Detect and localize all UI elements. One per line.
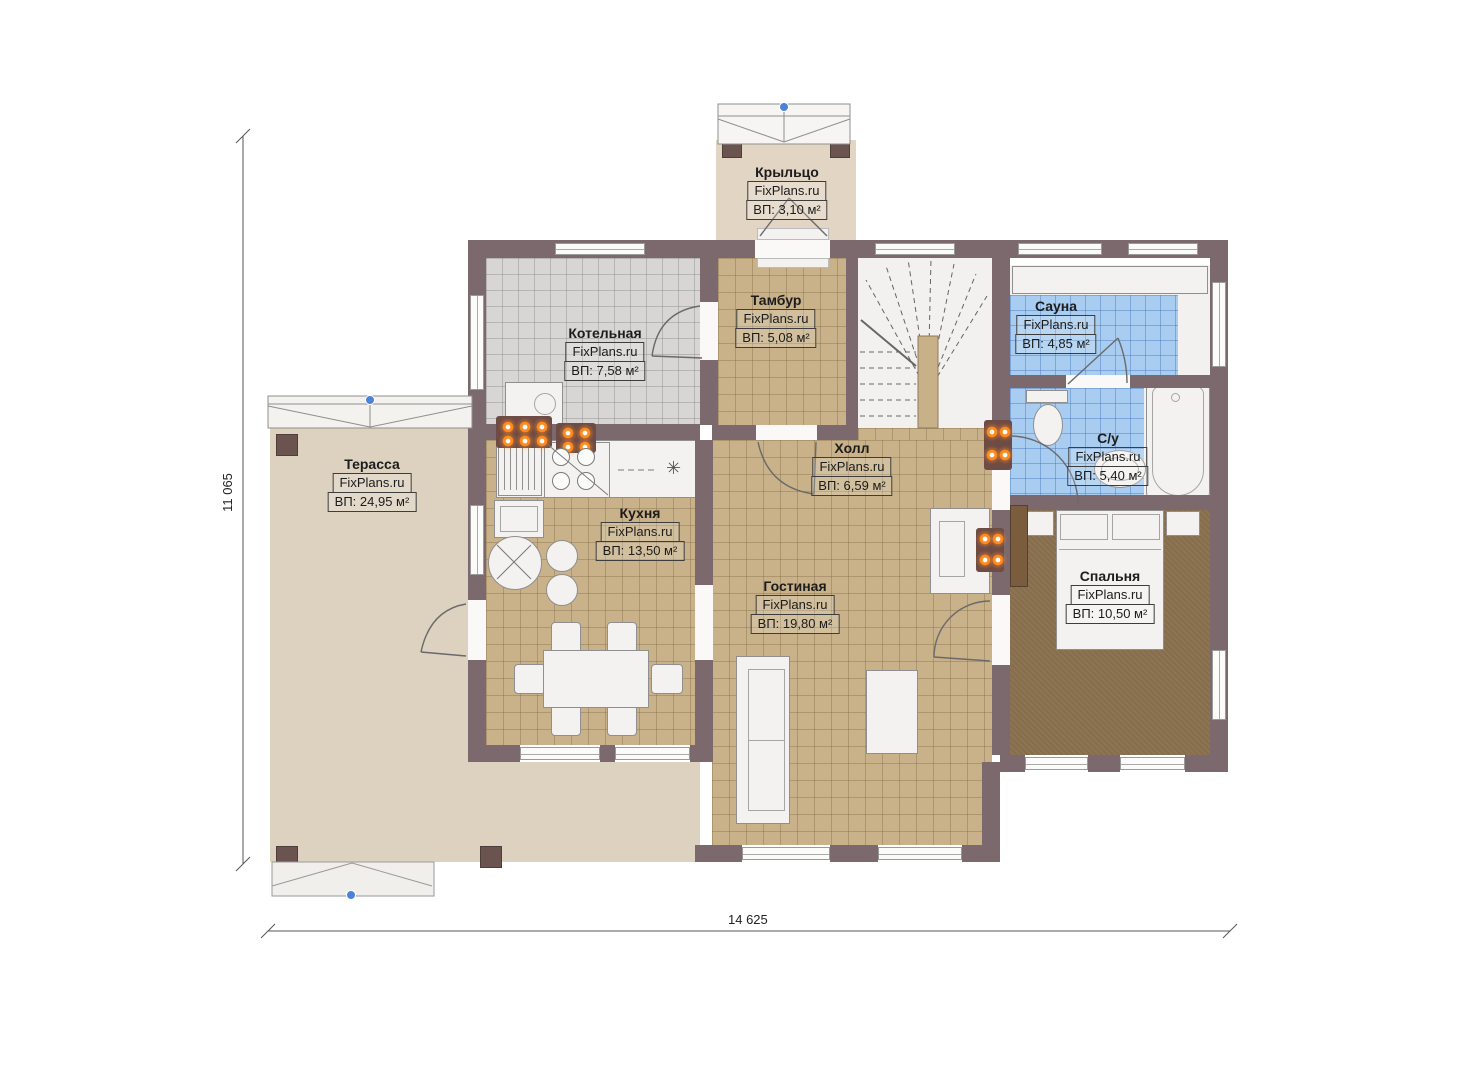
column-post (276, 434, 298, 456)
handle-dot (366, 396, 375, 405)
window (1025, 757, 1088, 770)
window (1120, 757, 1185, 770)
watermark: FixPlans.ru (1016, 315, 1095, 335)
wall (830, 845, 878, 862)
watermark: FixPlans.ru (812, 457, 891, 477)
window (1128, 243, 1198, 255)
door-opening-sauna (1066, 375, 1130, 388)
radiator-dot (536, 435, 548, 447)
wall (700, 360, 718, 425)
staircase-floor (858, 258, 992, 430)
radiator-dot (519, 421, 531, 433)
radiator-dot (579, 427, 591, 439)
door-opening-kitchen-living (695, 585, 713, 660)
room-name: Котельная (568, 325, 641, 341)
watermark: FixPlans.ru (600, 522, 679, 542)
radiator-dot (986, 449, 998, 461)
room-label-boiler: Котельная FixPlans.ru ВП: 7,58 м² (564, 325, 645, 381)
room-label-hall: Холл FixPlans.ru ВП: 6,59 м² (811, 440, 892, 496)
room-area: ВП: 5,08 м² (735, 328, 816, 348)
radiator-dot (986, 426, 998, 438)
toilet-tank (1026, 390, 1068, 403)
window (1018, 243, 1102, 255)
room-name: Сауна (1035, 298, 1077, 314)
wall (992, 258, 1010, 430)
wall (695, 440, 713, 585)
door-opening-boiler (700, 302, 718, 360)
room-name: Тамбур (751, 292, 802, 308)
stool (546, 540, 578, 572)
boiler-dial (534, 393, 556, 415)
column-post (480, 846, 502, 868)
coffee-table (866, 670, 918, 754)
handle-dot (780, 103, 789, 112)
room-name: Холл (834, 440, 869, 456)
wall (712, 425, 756, 440)
watermark: FixPlans.ru (1068, 447, 1147, 467)
watermark: FixPlans.ru (565, 342, 644, 362)
wall (962, 845, 1000, 862)
door-opening-tambour (756, 425, 817, 440)
dining-chair (551, 704, 581, 736)
sofa-cushion-line (748, 740, 785, 741)
window (1212, 282, 1226, 367)
kitchen-round-table (488, 536, 542, 590)
room-label-living: Гостиная FixPlans.ru ВП: 19,80 м² (751, 578, 840, 634)
room-label-kitchen: Кухня FixPlans.ru ВП: 13,50 м² (596, 505, 685, 561)
wall (700, 258, 718, 302)
dimension-width-label: 14 625 (728, 912, 768, 927)
watermark: FixPlans.ru (332, 473, 411, 493)
room-area: ВП: 19,80 м² (751, 614, 840, 634)
watermark: FixPlans.ru (736, 309, 815, 329)
terrace-canopy (268, 396, 472, 429)
radiator-dot (536, 421, 548, 433)
porch-threshold (757, 228, 829, 240)
room-label-bedroom: Спальня FixPlans.ru ВП: 10,50 м² (1066, 568, 1155, 624)
room-name: Спальня (1080, 568, 1140, 584)
dining-chair (607, 704, 637, 736)
door-opening-terrace (468, 600, 486, 660)
wall (817, 425, 858, 440)
radiator-dot (992, 554, 1004, 566)
radiator-dot (992, 533, 1004, 545)
dimension-height-label: 11 065 (220, 473, 235, 512)
radiator-dot (502, 435, 514, 447)
wall (690, 745, 713, 762)
room-area: ВП: 10,50 м² (1066, 604, 1155, 624)
bathtub (1146, 380, 1210, 502)
pillow (1060, 514, 1108, 540)
radiator-dot (999, 449, 1011, 461)
radiator-dot (519, 435, 531, 447)
wall (1185, 755, 1228, 772)
room-name: Крыльцо (755, 164, 819, 180)
window (615, 747, 690, 760)
room-label-tambour: Тамбур FixPlans.ru ВП: 5,08 м² (735, 292, 816, 348)
room-area: ВП: 24,95 м² (328, 492, 417, 512)
room-area: ВП: 3,10 м² (746, 200, 827, 220)
window (555, 243, 645, 255)
wall (1000, 755, 1025, 772)
room-label-sauna: Сауна FixPlans.ru ВП: 4,85 м² (1015, 298, 1096, 354)
room-area: ВП: 6,59 м² (811, 476, 892, 496)
sofa (736, 656, 790, 824)
radiator-dot (979, 554, 991, 566)
wall (1010, 495, 1210, 510)
wall (846, 258, 858, 428)
room-name: Гостиная (763, 578, 826, 594)
stool (546, 574, 578, 606)
wall (1088, 755, 1120, 772)
sauna-bench (1012, 266, 1208, 294)
wall (695, 660, 713, 745)
room-label-terrace: Терасса FixPlans.ru ВП: 24,95 м² (328, 456, 417, 512)
column-post (276, 846, 298, 868)
wall (1130, 375, 1210, 388)
door-opening-bedroom (992, 595, 1010, 665)
window (520, 747, 600, 760)
wall (468, 745, 520, 762)
dish-rack-lines (504, 448, 536, 490)
dimension-line-vertical (236, 129, 250, 871)
nightstand (1166, 511, 1200, 536)
dining-table (543, 650, 649, 708)
radiator-dot (502, 421, 514, 433)
wall (695, 845, 742, 862)
bathtub-inner (1152, 386, 1204, 496)
room-label-porch: Крыльцо FixPlans.ru ВП: 3,10 м² (746, 164, 827, 220)
column-post (830, 138, 850, 158)
watermark: FixPlans.ru (755, 595, 834, 615)
bedroom-door-leaf (1010, 505, 1028, 587)
window (878, 847, 962, 860)
room-name: Терасса (344, 456, 400, 472)
window (1212, 650, 1226, 720)
room-area: ВП: 13,50 м² (596, 541, 685, 561)
room-label-bathroom: С/у FixPlans.ru ВП: 5,40 м² (1067, 430, 1148, 486)
room-name: С/у (1097, 430, 1119, 446)
wall (600, 745, 615, 762)
wall (992, 665, 1010, 755)
room-floor-terrace-side (470, 762, 700, 862)
window (875, 243, 955, 255)
radiator-dot (979, 533, 991, 545)
radiator-dot (579, 441, 591, 453)
entry-threshold (757, 258, 829, 268)
fridge-snowflake-icon: ✳ (666, 458, 681, 479)
room-area: ВП: 7,58 м² (564, 361, 645, 381)
room-name: Кухня (620, 505, 661, 521)
room-floor-hall-sliver (858, 428, 992, 440)
fireplace-inner (939, 521, 965, 577)
radiator-dot (999, 426, 1011, 438)
window (470, 295, 484, 390)
kitchen-tall-cabinet (494, 500, 544, 538)
watermark: FixPlans.ru (1070, 585, 1149, 605)
radiator-dot (562, 427, 574, 439)
room-area: ВП: 4,85 м² (1015, 334, 1096, 354)
door-opening-porch (755, 240, 830, 258)
room-area: ВП: 5,40 м² (1067, 466, 1148, 486)
blanket-line (1059, 549, 1161, 550)
watermark: FixPlans.ru (747, 181, 826, 201)
pillow (1112, 514, 1160, 540)
wall (1010, 375, 1066, 388)
dining-chair (651, 664, 683, 694)
cabinet-inner (500, 506, 538, 532)
column-post (722, 138, 742, 158)
dining-chair (514, 664, 546, 694)
window (470, 505, 484, 575)
handle-dot (347, 891, 356, 900)
toilet-bowl (1033, 404, 1063, 446)
radiator-dot (562, 441, 574, 453)
bathtub-drain (1171, 393, 1180, 402)
floor-plan-canvas: ✳ (0, 0, 1474, 1080)
dish-rack (498, 442, 542, 496)
window (742, 847, 830, 860)
